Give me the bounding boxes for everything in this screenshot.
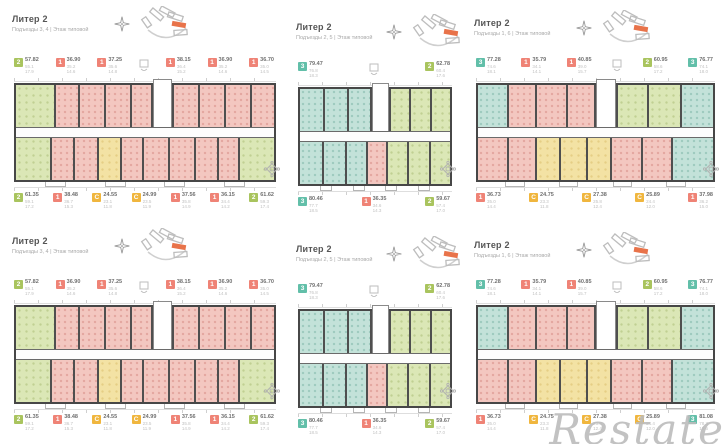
unit-badge-3[interactable]: 380.4677.718.5 (298, 419, 323, 436)
unit-area-value: 11.9 (143, 427, 157, 432)
apartment-room[interactable] (349, 311, 370, 353)
apartment-room[interactable] (432, 311, 450, 353)
unit-area-value: 14.1 (532, 70, 546, 75)
plan-title-block: Литер 2 Подъезды 1, 6 | Этаж типовой (474, 240, 550, 259)
apartment-room[interactable] (122, 360, 141, 402)
unit-areas: 62.7860.417.6 (436, 62, 450, 79)
plans-grid: Литер 2 Подъезды 3, 4 | Этаж типовой 257… (0, 0, 725, 444)
apartment-room[interactable] (16, 360, 50, 402)
apartment-room[interactable] (682, 307, 713, 349)
apartment-room[interactable] (618, 307, 647, 349)
unit-area-value: 12.4 (593, 205, 607, 210)
apartment-room[interactable] (300, 311, 323, 353)
apartment-room[interactable] (391, 89, 409, 131)
corridor (478, 349, 713, 360)
unit-area-value: 18.3 (309, 74, 323, 79)
unit-badge-1[interactable]: 138.1536.415.2 (166, 58, 191, 75)
apartment-room[interactable] (478, 85, 507, 127)
unit-type-label: 1 (56, 58, 65, 67)
unit-type-label: 2 (643, 280, 652, 289)
unit-area-value: 14.4 (487, 427, 501, 432)
unit-badge-1[interactable]: 140.8539.015.7 (567, 58, 592, 75)
apartment-room[interactable] (132, 307, 151, 349)
balcony (105, 404, 126, 409)
unit-badge-1[interactable]: 136.1534.414.2 (210, 415, 235, 432)
unit-badge-1[interactable]: 136.1534.414.2 (210, 193, 235, 210)
elevator-core (596, 79, 616, 127)
apartment-room[interactable] (643, 138, 672, 180)
apartment-room[interactable] (478, 360, 507, 402)
unit-badge-3[interactable]: 377.2874.618.1 (476, 280, 501, 297)
unit-areas: 38.1536.415.2 (177, 58, 191, 75)
unit-area-value: 14.6 (219, 70, 233, 75)
apartment-room[interactable] (106, 307, 130, 349)
unit-badge-1[interactable]: 137.5635.814.9 (171, 415, 196, 432)
apartment-room[interactable] (349, 89, 370, 131)
unit-area-value: 15.2 (177, 70, 191, 75)
unit-badge-С[interactable]: С24.9923.511.9 (132, 193, 157, 210)
apartment-room[interactable] (618, 85, 647, 127)
apartment-room[interactable] (478, 307, 507, 349)
unit-areas: 37.5635.814.9 (182, 193, 196, 210)
unit-area-value: 36.73 (487, 193, 501, 199)
apartment-room[interactable] (411, 311, 430, 353)
unit-area-value: 37.56 (182, 193, 196, 199)
unit-badge-1[interactable]: 136.7335.014.4 (476, 193, 501, 210)
apartment-room[interactable] (196, 360, 218, 402)
unit-type-label: С (132, 193, 141, 202)
unit-areas: 27.3825.812.4 (593, 193, 607, 210)
unit-badge-2[interactable]: 259.6757.417.0 (425, 197, 450, 214)
apartment-room[interactable] (174, 307, 198, 349)
unit-type-label: 1 (208, 280, 217, 289)
unit-area-value: 17.4 (260, 205, 274, 210)
unit-areas: 61.6259.317.4 (260, 415, 274, 432)
unit-area-value: 57.82 (25, 58, 39, 64)
unit-type-label: 1 (210, 193, 219, 202)
plan-title: Литер 2 (12, 14, 88, 24)
unit-badge-С[interactable]: С25.8924.412.0 (635, 193, 660, 210)
unit-area-value: 60.95 (654, 58, 668, 64)
apartment-room[interactable] (568, 307, 595, 349)
apartment-room[interactable] (509, 360, 536, 402)
building-outline (14, 83, 276, 182)
unit-badge-1[interactable]: 137.2535.614.8 (97, 58, 122, 75)
building-outline (298, 87, 452, 186)
balcony (353, 408, 365, 413)
apartment-room[interactable] (509, 85, 536, 127)
plan-title: Литер 2 (474, 240, 550, 250)
apartment-room[interactable] (99, 360, 121, 402)
apartment-room[interactable] (226, 307, 250, 349)
plan-subtitle: Подъезды 2, 5 | Этаж типовой (296, 257, 372, 263)
unit-area-value: 25.89 (646, 193, 660, 199)
unit-type-label: 1 (53, 415, 62, 424)
unit-badge-1[interactable]: 137.2535.614.8 (97, 280, 122, 297)
unit-badge-3[interactable]: 379.4776.818.3 (298, 284, 323, 301)
apartment-room[interactable] (200, 85, 224, 127)
balcony (666, 182, 685, 187)
unit-badge-1[interactable]: 136.7335.014.4 (476, 415, 501, 432)
unit-badge-3[interactable]: 380.4677.718.5 (298, 197, 323, 214)
unit-areas: 35.7934.114.1 (532, 280, 546, 297)
unit-badge-1[interactable]: 135.7934.114.1 (521, 58, 546, 75)
unit-badge-1[interactable]: 136.7035.014.5 (249, 58, 274, 75)
apartment-room[interactable] (325, 89, 347, 131)
unit-area-value: 18.5 (309, 209, 323, 214)
unit-area-value: 14.2 (221, 427, 235, 432)
unit-areas: 60.9558.617.2 (654, 58, 668, 75)
unit-areas: 36.9035.214.6 (67, 280, 81, 297)
apartment-room[interactable] (509, 307, 536, 349)
rooms-bottom (478, 360, 713, 402)
unit-areas: 80.4677.718.5 (309, 197, 323, 214)
apartment-room[interactable] (537, 85, 566, 127)
apartment-room[interactable] (132, 85, 151, 127)
corridor (16, 127, 274, 138)
unit-type-label: 1 (567, 280, 576, 289)
unit-badge-1[interactable]: 136.3534.614.3 (362, 419, 387, 436)
apartment-room[interactable] (588, 138, 610, 180)
unit-areas: 38.1536.415.2 (177, 280, 191, 297)
unit-areas: 57.8255.117.9 (25, 58, 39, 75)
apartment-room[interactable] (324, 364, 345, 406)
unit-area-value: 37.56 (182, 415, 196, 421)
balcony (164, 404, 185, 409)
plan-title: Литер 2 (296, 22, 372, 32)
rooms-top (300, 311, 450, 353)
compass-icon (114, 238, 130, 254)
unit-area-value: 40.85 (578, 280, 592, 286)
unit-area-value: 17.9 (25, 70, 39, 75)
unit-badges-top: 257.8255.117.9136.9035.214.6137.2535.614… (14, 280, 274, 298)
apartment-room[interactable] (391, 311, 409, 353)
apartment-room[interactable] (347, 142, 366, 184)
unit-area-value: 18.5 (309, 431, 323, 436)
unit-area-value: 38.48 (64, 193, 78, 199)
unit-areas: 24.9923.511.9 (143, 415, 157, 432)
unit-badges-bottom: 136.7335.014.4С24.7523.311.8С27.3825.812… (476, 193, 713, 211)
unit-badge-1[interactable]: 140.8539.015.7 (567, 280, 592, 297)
unit-areas: 61.6259.317.4 (260, 193, 274, 210)
site-plan-icon (410, 236, 462, 276)
unit-badge-3[interactable]: 376.7774.118.0 (688, 58, 713, 75)
unit-area-value: 62.78 (436, 62, 450, 68)
apartment-room[interactable] (649, 307, 680, 349)
unit-areas: 24.5523.111.8 (103, 193, 117, 210)
unit-area-value: 18.0 (699, 292, 713, 297)
apartment-room[interactable] (16, 138, 50, 180)
unit-badge-1[interactable]: 137.5635.814.9 (171, 193, 196, 210)
apartment-room[interactable] (388, 142, 407, 184)
unit-areas: 36.1534.414.2 (221, 193, 235, 210)
unit-badge-1[interactable]: 136.7035.014.5 (249, 280, 274, 297)
apartment-room[interactable] (409, 364, 428, 406)
unit-area-value: 79.47 (309, 284, 323, 290)
apartment-room[interactable] (219, 138, 238, 180)
unit-badge-1[interactable]: 136.9035.214.6 (56, 58, 81, 75)
dimension-ticks-bottom (298, 413, 452, 417)
unit-area-value: 24.99 (143, 193, 157, 199)
balcony (45, 182, 66, 187)
apartment-room[interactable] (509, 138, 536, 180)
section-marker-icon (263, 160, 281, 178)
unit-badge-С[interactable]: С24.5523.111.8 (92, 415, 117, 432)
apartment-room[interactable] (568, 85, 595, 127)
unit-area-value: 14.6 (219, 292, 233, 297)
apartment-room[interactable] (325, 311, 347, 353)
dimension-ticks-bottom (14, 187, 276, 191)
apartment-room[interactable] (52, 360, 74, 402)
unit-area-value: 57.82 (25, 280, 39, 286)
unit-type-label: 1 (362, 419, 371, 428)
unit-type-label: 2 (425, 62, 434, 71)
unit-badge-2[interactable]: 262.7860.417.6 (425, 284, 450, 301)
unit-areas: 40.8539.015.7 (578, 58, 592, 75)
unit-badge-С[interactable]: С27.3825.812.4 (582, 193, 607, 210)
apartment-room[interactable] (80, 85, 104, 127)
unit-badge-2[interactable]: 260.9558.617.2 (643, 280, 668, 297)
plan-title-block: Литер 2 Подъезды 2, 5 | Этаж типовой (296, 22, 372, 41)
unit-type-label: 1 (567, 58, 576, 67)
unit-badge-2[interactable]: 257.8255.117.9 (14, 280, 39, 297)
unit-area-value: 79.47 (309, 62, 323, 68)
apartment-room[interactable] (643, 360, 672, 402)
unit-badge-С[interactable]: С24.9923.511.9 (132, 415, 157, 432)
apartment-room[interactable] (300, 364, 322, 406)
unit-areas: 77.2874.618.1 (487, 280, 501, 297)
unit-badge-2[interactable]: 262.7860.417.6 (425, 62, 450, 79)
unit-badge-1[interactable]: 136.9035.214.6 (56, 280, 81, 297)
unit-area-value: 18.1 (487, 70, 501, 75)
apartment-room[interactable] (409, 142, 428, 184)
unit-badge-С[interactable]: С24.5523.111.8 (92, 193, 117, 210)
unit-areas: 57.8255.117.9 (25, 280, 39, 297)
apartment-room[interactable] (561, 138, 585, 180)
unit-badge-1[interactable]: 135.7934.114.1 (521, 280, 546, 297)
unit-badge-2[interactable]: 261.3559.117.2 (14, 415, 39, 432)
balcony (613, 182, 632, 187)
apartment-room[interactable] (612, 138, 641, 180)
unit-area-value: 14.1 (532, 292, 546, 297)
unit-badge-3[interactable]: 376.7774.118.0 (688, 280, 713, 297)
plan-title: Литер 2 (12, 236, 88, 246)
unit-badge-2[interactable]: 259.6757.417.0 (425, 419, 450, 436)
rooms-top (16, 85, 274, 127)
apartment-room[interactable] (588, 360, 610, 402)
unit-areas: 37.5635.814.9 (182, 415, 196, 432)
apartment-room[interactable] (300, 89, 323, 131)
apartment-room[interactable] (16, 85, 54, 127)
plan-subtitle: Подъезды 3, 4 | Этаж типовой (12, 249, 88, 255)
balcony (320, 408, 332, 413)
apartment-room[interactable] (219, 360, 238, 402)
unit-area-value: 61.62 (260, 415, 274, 421)
unit-badge-2[interactable]: 261.3559.117.2 (14, 193, 39, 210)
apartment-room[interactable] (649, 85, 680, 127)
unit-type-label: С (635, 193, 644, 202)
balcony (385, 408, 397, 413)
unit-areas: 36.9035.214.6 (67, 58, 81, 75)
rooms-bottom (478, 138, 713, 180)
apartment-room[interactable] (226, 85, 250, 127)
unit-type-label: 1 (171, 415, 180, 424)
unit-type-label: 3 (298, 419, 307, 428)
building-outline (14, 305, 276, 404)
unit-badge-3[interactable]: 377.2874.618.1 (476, 58, 501, 75)
unit-type-label: С (529, 415, 538, 424)
unit-badges-bottom: 380.4677.718.5136.3534.614.3259.6757.417… (298, 419, 450, 437)
unit-area-value: 17.2 (25, 427, 39, 432)
apartment-room[interactable] (80, 307, 104, 349)
apartment-room[interactable] (170, 360, 194, 402)
site-plan-icon (138, 228, 196, 268)
unit-area-value: 14.9 (182, 427, 196, 432)
unit-area-value: 11.8 (540, 205, 554, 210)
unit-type-label: 3 (476, 58, 485, 67)
unit-type-label: 1 (208, 58, 217, 67)
unit-badge-1[interactable]: 138.4836.715.3 (53, 415, 78, 432)
apartment-room[interactable] (170, 138, 194, 180)
plan-title-block: Литер 2 Подъезды 2, 5 | Этаж типовой (296, 244, 372, 263)
apartment-room[interactable] (75, 360, 97, 402)
unit-badge-1[interactable]: 136.3534.614.3 (362, 197, 387, 214)
unit-areas: 36.3534.614.3 (373, 197, 387, 214)
site-plan-icon (138, 6, 196, 46)
compass-icon (576, 242, 592, 258)
building-outline (298, 309, 452, 408)
unit-area-value: 59.67 (436, 419, 450, 425)
apartment-room[interactable] (144, 138, 168, 180)
unit-badge-1[interactable]: 138.1536.415.2 (166, 280, 191, 297)
apartment-room[interactable] (537, 307, 566, 349)
unit-area-value: 15.7 (578, 70, 592, 75)
plan-title-block: Литер 2 Подъезды 3, 4 | Этаж типовой (12, 14, 88, 33)
apartment-room[interactable] (432, 89, 450, 131)
unit-area-value: 14.9 (182, 205, 196, 210)
unit-area-value: 11.9 (143, 205, 157, 210)
unit-area-value: 17.9 (25, 292, 39, 297)
unit-area-value: 15.2 (177, 292, 191, 297)
apartment-room[interactable] (99, 138, 121, 180)
unit-area-value: 36.15 (221, 193, 235, 199)
apartment-room[interactable] (122, 138, 141, 180)
apartment-room[interactable] (347, 364, 366, 406)
unit-areas: 36.7335.014.4 (487, 415, 501, 432)
unit-areas: 24.9923.511.9 (143, 193, 157, 210)
unit-area-value: 17.0 (436, 209, 450, 214)
unit-area-value: 14.8 (108, 70, 122, 75)
unit-area-value: 38.15 (177, 280, 191, 286)
plan-subtitle: Подъезды 2, 5 | Этаж типовой (296, 35, 372, 41)
unit-areas: 76.7774.118.0 (699, 58, 713, 75)
apartment-room[interactable] (388, 364, 407, 406)
corridor (300, 353, 450, 364)
apartment-room[interactable] (16, 307, 54, 349)
unit-areas: 24.7523.311.8 (540, 193, 554, 210)
apartment-room[interactable] (56, 85, 78, 127)
unit-badge-1[interactable]: 136.9035.214.6 (208, 280, 233, 297)
balcony (353, 186, 365, 191)
elevator-core (153, 301, 172, 349)
apartment-room[interactable] (75, 138, 97, 180)
unit-area-value: 14.3 (373, 431, 387, 436)
compass-icon (386, 246, 402, 262)
unit-type-label: С (92, 415, 101, 424)
apartment-room[interactable] (56, 307, 78, 349)
apartment-room[interactable] (200, 307, 224, 349)
unit-area-value: 36.73 (487, 415, 501, 421)
apartment-room[interactable] (300, 142, 322, 184)
unit-area-value: 14.5 (260, 70, 274, 75)
unit-area-value: 11.8 (103, 427, 117, 432)
balcony (224, 404, 245, 409)
apartment-room[interactable] (368, 142, 386, 184)
apartment-room[interactable] (52, 138, 74, 180)
building-outline (476, 305, 715, 404)
unit-badge-2[interactable]: 257.8255.117.9 (14, 58, 39, 75)
unit-type-label: 3 (298, 62, 307, 71)
unit-badge-3[interactable]: 379.4776.818.3 (298, 62, 323, 79)
apartment-room[interactable] (478, 138, 507, 180)
site-plan-icon (600, 10, 658, 50)
unit-areas: 36.7035.014.5 (260, 58, 274, 75)
unit-type-label: 1 (166, 280, 175, 289)
apartment-room[interactable] (411, 89, 430, 131)
apartment-room[interactable] (252, 307, 274, 349)
unit-area-value: 15.0 (699, 205, 713, 210)
unit-area-value: 24.55 (103, 193, 117, 199)
unit-badge-1[interactable]: 136.9035.214.6 (208, 58, 233, 75)
apartment-room[interactable] (537, 138, 559, 180)
rooms-bottom (300, 142, 450, 184)
unit-badge-1[interactable]: 137.9836.215.0 (688, 193, 713, 210)
unit-type-label: 2 (14, 193, 23, 202)
apartment-room[interactable] (682, 85, 713, 127)
unit-badge-С[interactable]: С24.7523.311.8 (529, 193, 554, 210)
unit-badge-2[interactable]: 260.9558.617.2 (643, 58, 668, 75)
apartment-room[interactable] (324, 142, 345, 184)
apartment-room[interactable] (144, 360, 168, 402)
elevator-core (372, 305, 389, 353)
apartment-room[interactable] (106, 85, 130, 127)
apartment-room[interactable] (537, 360, 559, 402)
apartment-room[interactable] (561, 360, 585, 402)
unit-area-value: 18.3 (309, 296, 323, 301)
apartment-room[interactable] (612, 360, 641, 402)
unit-areas: 36.7035.014.5 (260, 280, 274, 297)
apartment-room[interactable] (174, 85, 198, 127)
unit-type-label: 1 (171, 193, 180, 202)
unit-badge-2[interactable]: 261.6259.317.4 (249, 193, 274, 210)
unit-badge-1[interactable]: 138.4836.715.3 (53, 193, 78, 210)
elevator-core (596, 301, 616, 349)
unit-type-label: 2 (425, 197, 434, 206)
unit-areas: 38.4836.715.3 (64, 415, 78, 432)
unit-area-value: 37.25 (108, 58, 122, 64)
watermark: Restate (549, 405, 725, 444)
apartment-room[interactable] (196, 138, 218, 180)
floorplan-card: Литер 2 Подъезды 2, 5 | Этаж типовой 379… (286, 222, 462, 444)
balcony (224, 182, 245, 187)
section-marker-icon (439, 382, 457, 400)
unit-areas: 61.3559.117.2 (25, 415, 39, 432)
apartment-room[interactable] (368, 364, 386, 406)
unit-area-value: 77.28 (487, 280, 501, 286)
apartment-room[interactable] (252, 85, 274, 127)
unit-badge-2[interactable]: 261.6259.317.4 (249, 415, 274, 432)
unit-area-value: 24.99 (143, 415, 157, 421)
